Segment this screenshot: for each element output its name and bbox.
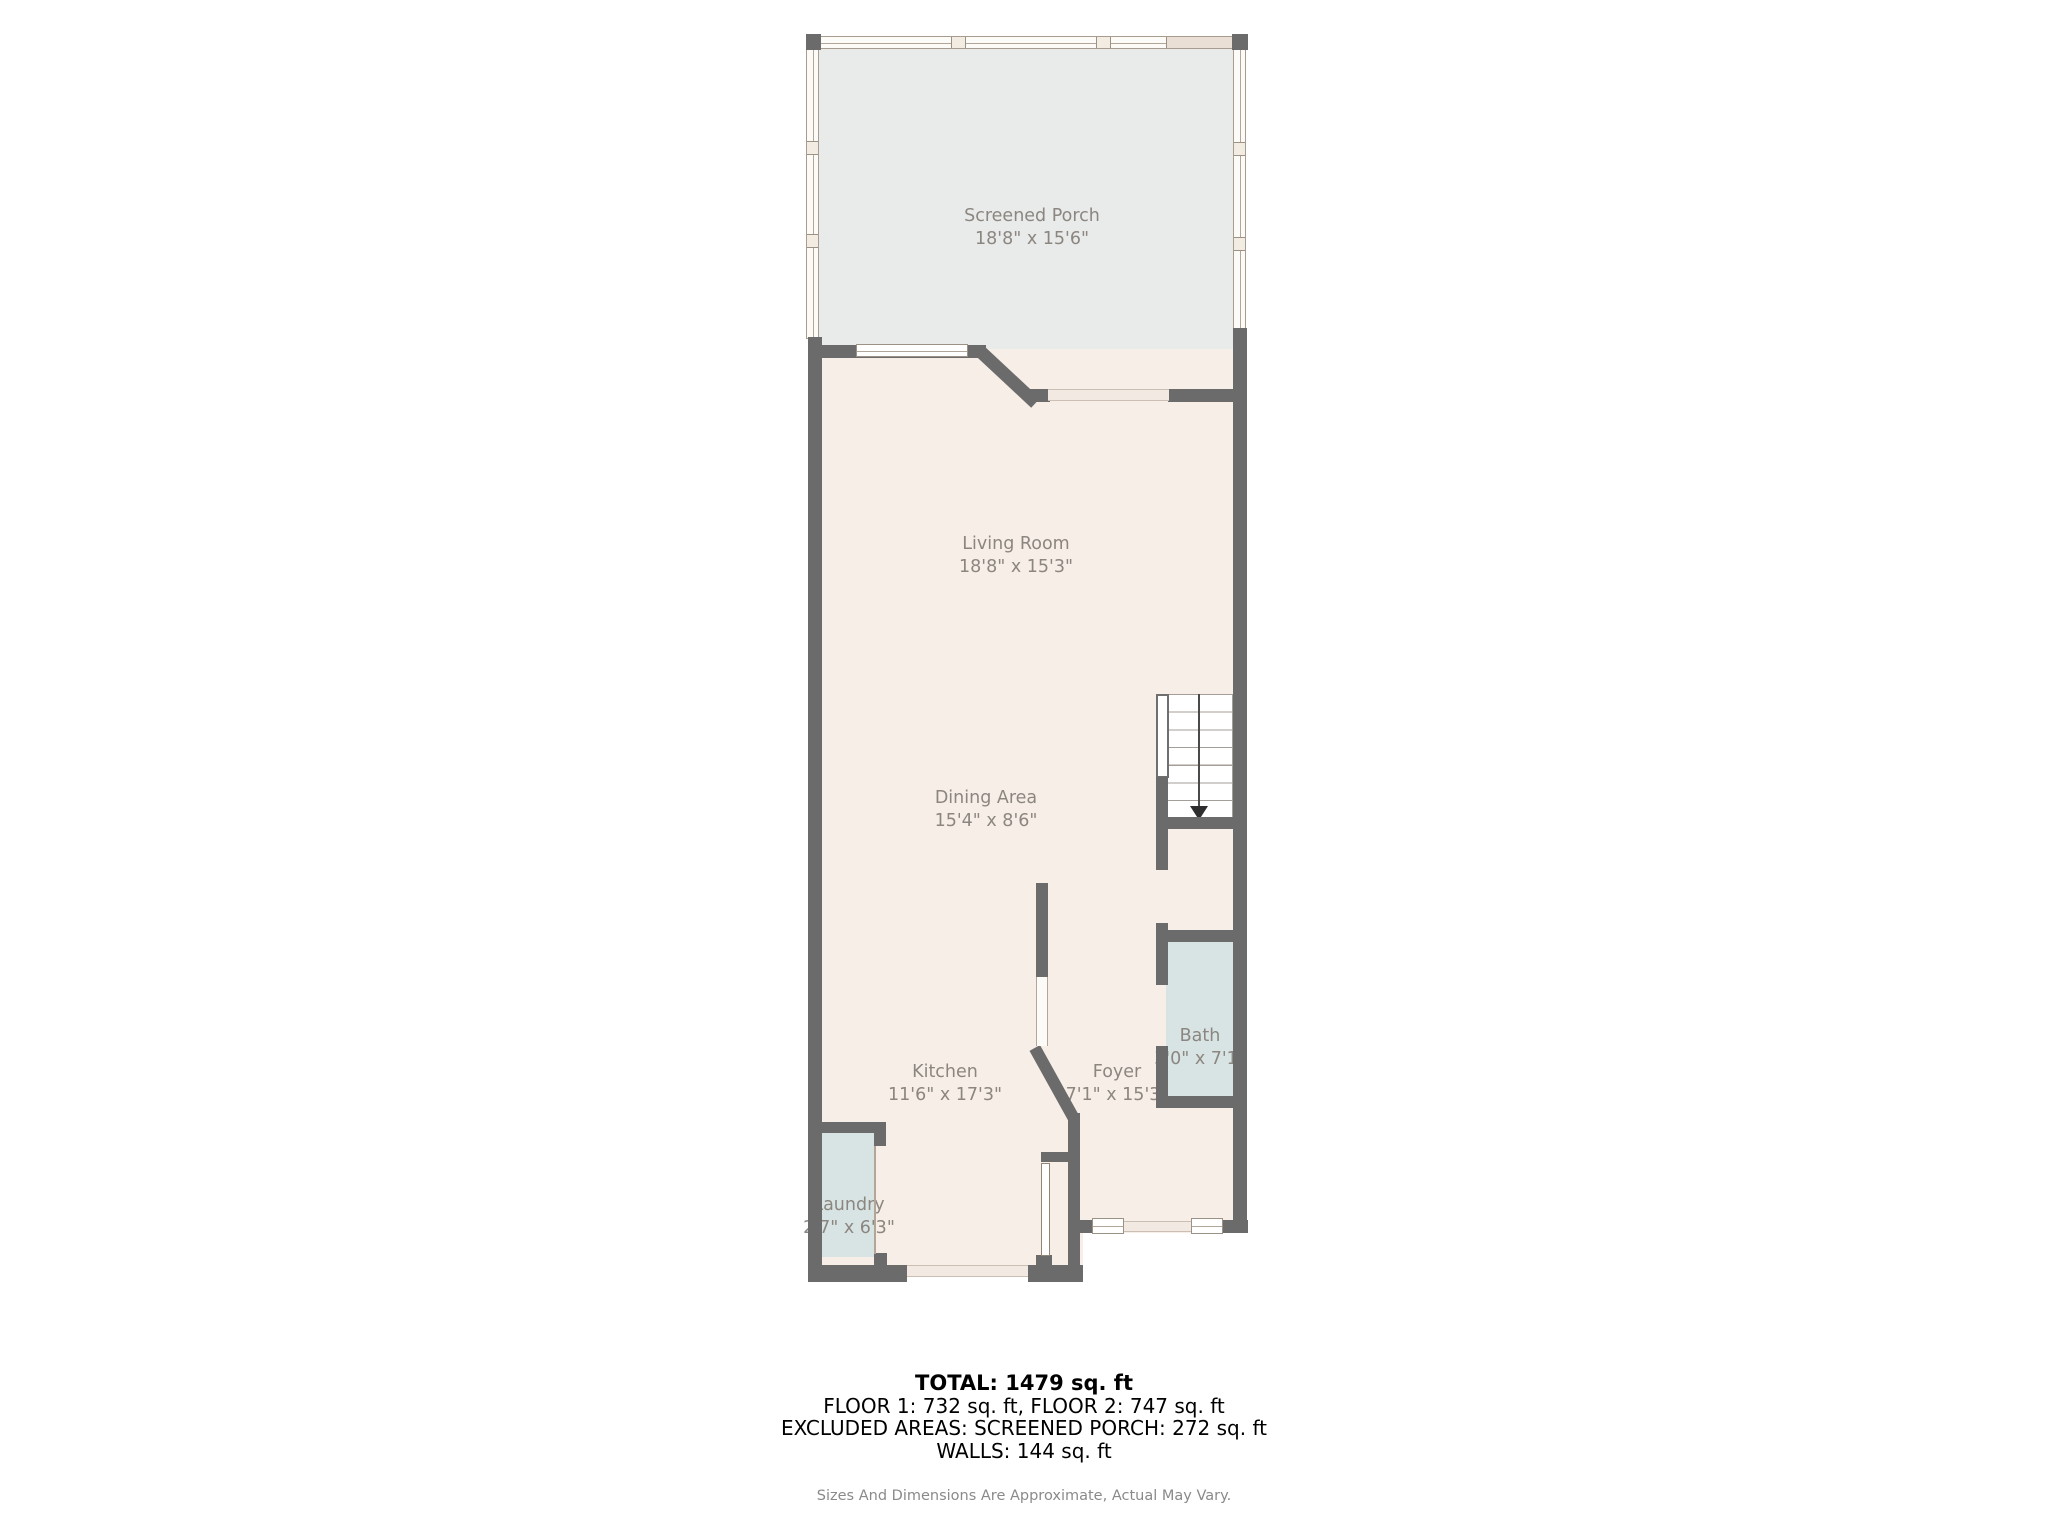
- room-label-living-room: Living Room 18'8" x 15'3": [959, 533, 1073, 579]
- screen-mullion: [807, 141, 818, 155]
- walls-area: WALLS: 144 sq. ft: [0, 1440, 2048, 1463]
- wall-bath-top: [1166, 930, 1233, 942]
- wall-foyer-bottom-right: [1222, 1220, 1248, 1233]
- screen-mullion: [807, 234, 818, 248]
- porch-screen-wall-top: [819, 36, 1234, 49]
- stair-run-line: [1198, 694, 1200, 808]
- wall-stair-left: [1156, 777, 1168, 870]
- room-dims: 7'1" x 15'3": [1066, 1084, 1169, 1107]
- closet-door: [1041, 1163, 1050, 1256]
- wall-dining-kitchen-divider: [1036, 883, 1048, 977]
- porch-corner-post: [806, 34, 821, 50]
- room-dims: 15'4" x 8'6": [935, 810, 1038, 833]
- window-midline: [857, 351, 967, 352]
- screen-mullion: [1096, 37, 1111, 48]
- stair-railing: [1156, 694, 1169, 778]
- room-label-foyer: Foyer 7'1" x 15'3": [1066, 1061, 1169, 1107]
- screen-mullion: [1234, 142, 1245, 156]
- porch-corner-post: [1232, 34, 1248, 50]
- area-summary: TOTAL: 1479 sq. ft FLOOR 1: 732 sq. ft, …: [0, 1372, 2048, 1462]
- porch-solid-wall-segment: [1166, 37, 1233, 48]
- wall-kitchen-foyer-divider: [1068, 1113, 1080, 1277]
- kitchen-rear-opening: [907, 1265, 1028, 1277]
- living-room-porch-window: [856, 344, 968, 357]
- room-dims: 11'6" x 17'3": [888, 1084, 1002, 1107]
- front-door-opening: [1124, 1221, 1192, 1232]
- window-midline: [1192, 1226, 1222, 1227]
- wall-kitchen-bottom-left: [808, 1265, 907, 1282]
- foyer-front-window-right: [1191, 1218, 1223, 1234]
- screen-midline: [813, 50, 814, 338]
- room-dims: 18'8" x 15'6": [964, 228, 1100, 251]
- room-name: Dining Area: [935, 787, 1038, 810]
- dining-kitchen-cased-opening: [1036, 977, 1048, 1046]
- wall-bath-bottom: [1156, 1096, 1233, 1108]
- room-label-dining-area: Dining Area 15'4" x 8'6": [935, 787, 1038, 833]
- porch-sliding-door-opening: [1048, 389, 1169, 401]
- wall-closet-top-stub: [1041, 1152, 1073, 1162]
- wall-kitchen-bottom-right: [1028, 1265, 1083, 1282]
- staircase: [1160, 694, 1233, 818]
- disclaimer-text: Sizes And Dimensions Are Approximate, Ac…: [0, 1488, 2048, 1504]
- wall-left-exterior: [808, 337, 822, 1282]
- total-area: TOTAL: 1479 sq. ft: [0, 1372, 2048, 1395]
- wall-porch-divider-right: [1168, 389, 1233, 402]
- porch-screen-wall-right: [1233, 48, 1246, 330]
- screened-porch-floor: [819, 49, 1233, 349]
- wall-foyer-bottom-left-stub: [1076, 1220, 1092, 1233]
- room-name: Kitchen: [888, 1061, 1002, 1084]
- screen-mullion: [1234, 237, 1245, 251]
- window-midline: [1093, 1226, 1123, 1227]
- room-label-screened-porch: Screened Porch 18'8" x 15'6": [964, 205, 1100, 251]
- porch-screen-wall-left: [806, 49, 819, 339]
- wall-right-exterior: [1233, 328, 1247, 1233]
- screen-midline: [1240, 49, 1241, 329]
- floor-plan: Screened Porch 18'8" x 15'6" Living Room…: [0, 0, 2048, 1536]
- room-name: Screened Porch: [964, 205, 1100, 228]
- excluded-areas: EXCLUDED AREAS: SCREENED PORCH: 272 sq. …: [0, 1417, 2048, 1440]
- room-name: Living Room: [959, 533, 1073, 556]
- foyer-front-window-left: [1092, 1218, 1124, 1234]
- laundry-door-opening: [874, 1146, 876, 1254]
- wall-porch-divider-stub: [1030, 389, 1050, 402]
- room-dims: 18'8" x 15'3": [959, 556, 1073, 579]
- wall-laundry-right-upper-stub: [874, 1122, 886, 1146]
- floor-areas: FLOOR 1: 732 sq. ft, FLOOR 2: 747 sq. ft: [0, 1395, 2048, 1418]
- bath-floor: [1166, 938, 1233, 1098]
- screen-mullion: [951, 37, 966, 48]
- wall-laundry-right-lower-stub: [874, 1253, 887, 1267]
- room-label-kitchen: Kitchen 11'6" x 17'3": [888, 1061, 1002, 1107]
- room-name: Foyer: [1066, 1061, 1169, 1084]
